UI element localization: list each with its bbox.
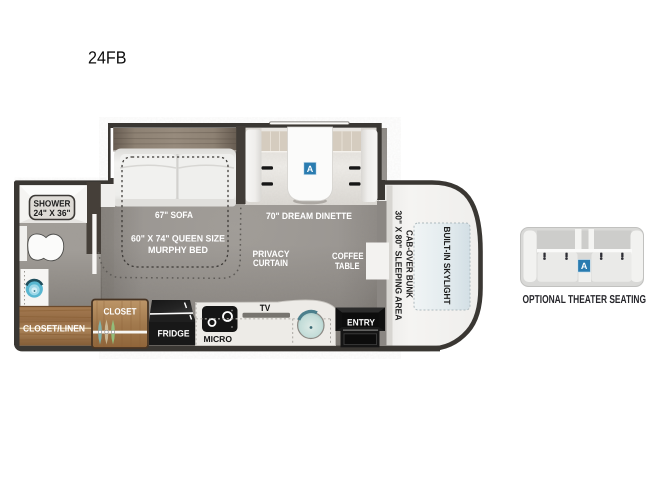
svg-text:CAB-OVER BUNK: CAB-OVER BUNK: [405, 230, 415, 298]
svg-text:FRIDGE: FRIDGE: [158, 328, 190, 338]
svg-text:60" X 74" QUEEN SIZE: 60" X 74" QUEEN SIZE: [131, 233, 225, 243]
svg-text:24FB: 24FB: [88, 48, 127, 68]
svg-text:30" X 80" SLEEPING AREA: 30" X 80" SLEEPING AREA: [393, 211, 403, 321]
svg-text:67" SOFA: 67" SOFA: [155, 210, 193, 220]
svg-text:OPTIONAL THEATER SEATING: OPTIONAL THEATER SEATING: [523, 294, 647, 306]
svg-text:70" DREAM DINETTE: 70" DREAM DINETTE: [266, 211, 352, 221]
svg-text:ENTRY: ENTRY: [347, 317, 375, 327]
svg-text:24" X 36": 24" X 36": [34, 208, 71, 218]
svg-text:MURPHY BED: MURPHY BED: [148, 245, 208, 255]
svg-text:BUILT-IN SKYLIGHT: BUILT-IN SKYLIGHT: [442, 227, 452, 305]
svg-text:A: A: [307, 164, 314, 174]
svg-text:SHOWER: SHOWER: [34, 198, 71, 208]
svg-text:CURTAIN: CURTAIN: [253, 258, 288, 268]
svg-text:TABLE: TABLE: [335, 261, 360, 271]
svg-text:CLOSET/LINEN: CLOSET/LINEN: [23, 324, 85, 334]
svg-text:A: A: [581, 261, 588, 271]
svg-text:MICRO: MICRO: [204, 334, 233, 344]
svg-text:CLOSET: CLOSET: [104, 306, 137, 316]
svg-text:COFFEE: COFFEE: [332, 251, 364, 261]
svg-text:TV: TV: [260, 303, 271, 313]
